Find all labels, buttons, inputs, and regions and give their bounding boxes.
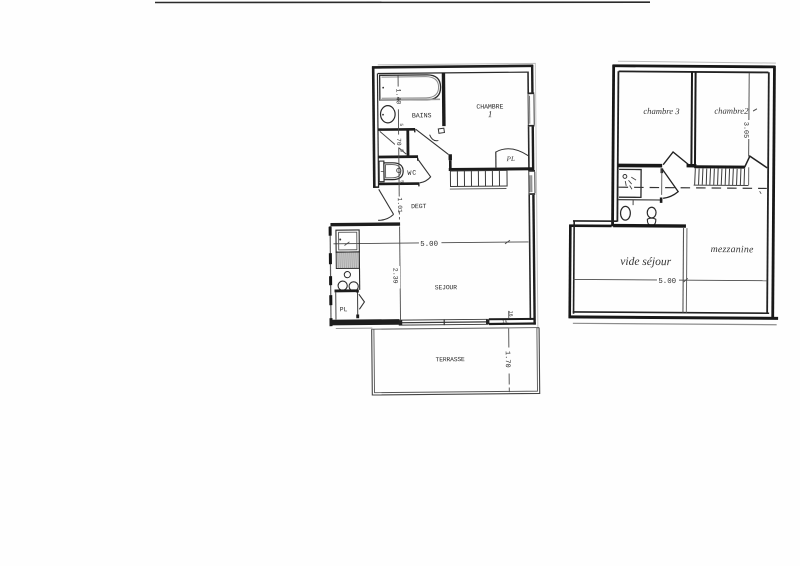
svg-text:2.39: 2.39: [391, 268, 398, 284]
svg-text:TERRASSE: TERRASSE: [436, 356, 465, 363]
svg-text:PL: PL: [340, 306, 348, 313]
svg-text:5: 5: [398, 149, 404, 152]
svg-text:BAINS: BAINS: [412, 112, 432, 120]
svg-text:1.40: 1.40: [394, 89, 401, 105]
svg-text:1.70: 1.70: [503, 351, 511, 368]
svg-text:1.01: 1.01: [396, 198, 403, 214]
svg-text:3.05: 3.05: [741, 122, 749, 138]
svg-text:chambre 3: chambre 3: [643, 106, 679, 116]
svg-text:chambre2: chambre2: [714, 106, 749, 116]
svg-text:5.00: 5.00: [420, 241, 438, 249]
svg-text:15: 15: [502, 320, 508, 325]
svg-text:5: 5: [399, 180, 405, 183]
svg-text:DEGT: DEGT: [411, 203, 426, 210]
svg-text:SEJOUR: SEJOUR: [435, 284, 457, 291]
svg-text:PL: PL: [506, 155, 515, 163]
svg-text:mezzanine: mezzanine: [711, 244, 755, 255]
svg-text:1: 1: [488, 109, 493, 119]
svg-text:vide séjour: vide séjour: [620, 256, 671, 268]
svg-text:70: 70: [395, 138, 402, 146]
svg-text:5: 5: [398, 123, 404, 126]
svg-text:WC: WC: [407, 170, 417, 178]
svg-text:5.00: 5.00: [658, 278, 676, 286]
